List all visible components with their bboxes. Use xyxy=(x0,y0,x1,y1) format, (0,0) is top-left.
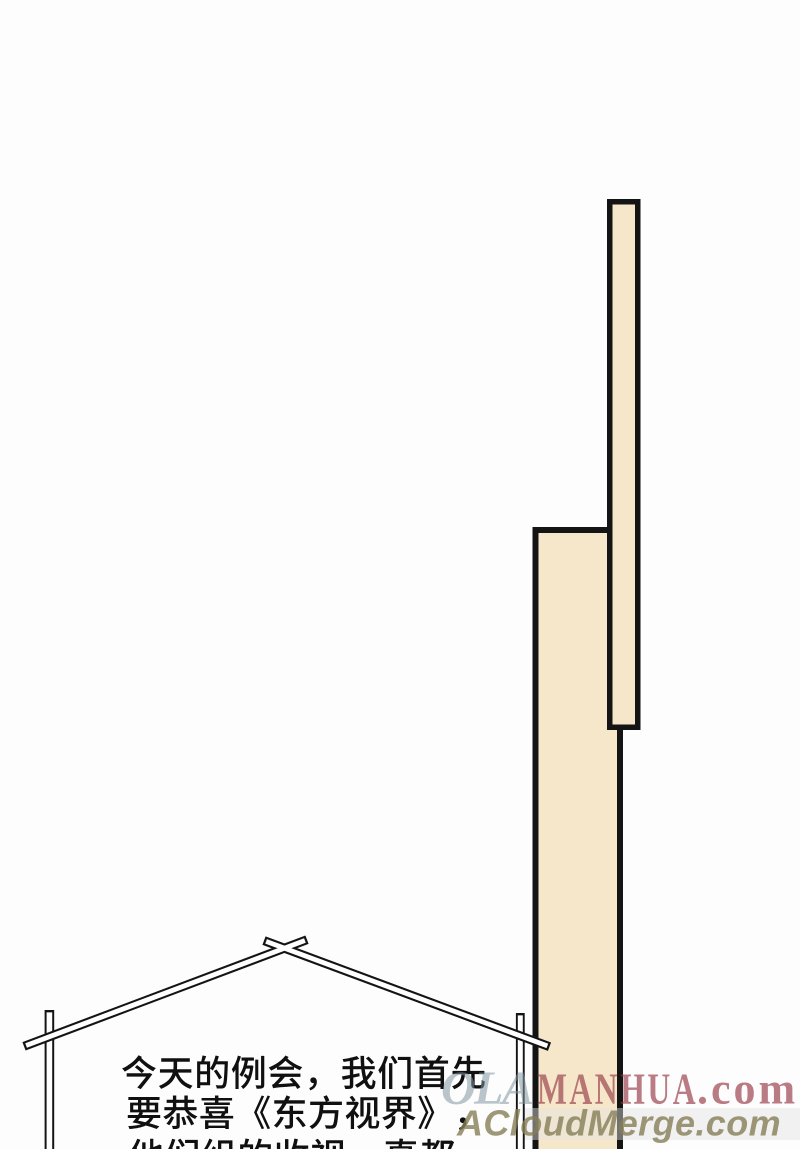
svg-text:ACloudMerge.com: ACloudMerge.com xyxy=(456,1103,781,1144)
